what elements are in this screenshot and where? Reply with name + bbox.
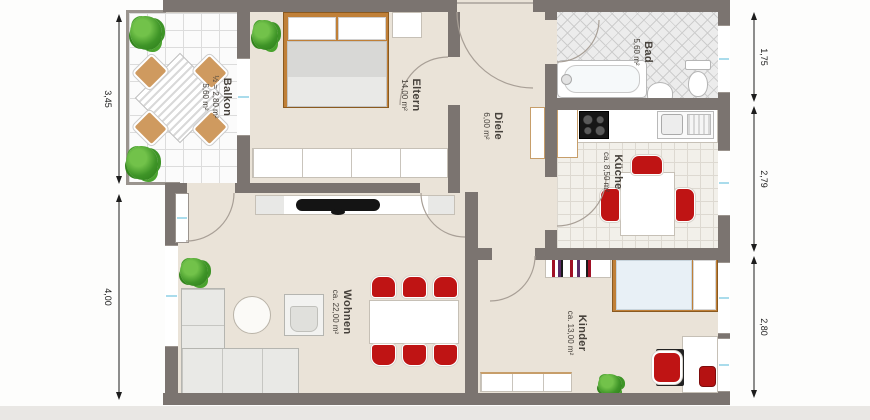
window-bad	[718, 25, 730, 93]
eltern-plant-icon	[252, 20, 278, 50]
room-name: Bad	[642, 41, 654, 63]
room-name: Diele	[492, 112, 504, 140]
room-area: ca. 13,00 m²	[566, 311, 575, 355]
kueche-door-opening	[545, 177, 557, 230]
room-area: ca. 22,00 m²	[331, 290, 340, 334]
window-kinder-2	[718, 338, 730, 392]
eltern-bed-pillow	[338, 17, 386, 40]
room-label-kueche: Küche ca. 8,50 m²	[602, 152, 624, 192]
room-area: 14,00 m²	[400, 79, 409, 111]
dim-right-1: 1,75	[759, 48, 769, 66]
wall	[448, 105, 460, 193]
balcony-plant-top-icon	[130, 16, 162, 50]
tv-stand-icon	[331, 209, 345, 215]
kinder-door-opening	[492, 248, 535, 260]
room-label-diele: Diele 6,00 m²	[482, 112, 504, 140]
room-name: Eltern	[410, 79, 422, 112]
kitchen-chair	[675, 188, 695, 222]
room-label-balkon: Balkon ½ = 2,80 m² 5,60 m²	[201, 76, 233, 119]
eltern-sideboard	[252, 148, 448, 178]
page-bottom-strip	[0, 406, 870, 420]
dining-chair	[433, 344, 458, 366]
kitchen-chair	[600, 188, 620, 222]
coffee-table	[233, 296, 271, 334]
room-area: 6,00 m²	[482, 112, 491, 139]
entrance-opening	[457, 0, 533, 12]
kinder-bookshelf	[545, 258, 611, 278]
dining-chair	[402, 344, 427, 366]
kinder-bed-pillow	[693, 260, 716, 310]
diele-cabinet	[530, 107, 545, 159]
window-kueche	[718, 150, 730, 216]
room-label-eltern: Eltern 14,00 m²	[400, 79, 422, 112]
eltern-bed-blanket	[287, 41, 387, 107]
dim-right-2: 2,79	[759, 170, 769, 188]
balcony-railing-top	[126, 10, 166, 13]
room-name: Balkon	[221, 78, 233, 116]
wall	[545, 110, 557, 177]
room-label-wohnen: Wohnen ca. 22,00 m²	[331, 290, 353, 335]
wall	[545, 230, 557, 260]
wall	[235, 183, 420, 193]
kitchen-sink-drainer	[687, 114, 711, 135]
dining-chair	[433, 276, 458, 298]
room-area: 5,60 m²	[632, 38, 641, 65]
dining-chair	[402, 276, 427, 298]
kitchen-cabinet	[557, 107, 578, 158]
kitchen-table	[620, 172, 675, 236]
wall	[163, 0, 457, 12]
room-label-kinder: Kinder ca. 13,00 m²	[566, 311, 588, 355]
balcony-door-opening	[187, 183, 235, 193]
eltern-nightstand	[392, 12, 422, 38]
wall	[533, 0, 730, 12]
window-eltern-balcony	[237, 58, 250, 136]
room-name: Küche	[612, 154, 624, 189]
wall	[165, 183, 187, 193]
room-name: Wohnen	[341, 290, 353, 335]
wall	[545, 98, 730, 110]
bathtub-faucet-icon	[561, 74, 572, 85]
wall	[478, 248, 492, 260]
balcony-plant-bottom-icon	[126, 146, 158, 180]
toilet-bowl	[688, 71, 708, 97]
room-area: ½ = 2,80 m²	[211, 76, 220, 119]
dim-left-1: 3,45	[103, 90, 113, 108]
window-wohnen	[165, 245, 178, 347]
room-area: ca. 8,50 m²	[602, 152, 611, 192]
floor-plan: Balkon ½ = 2,80 m² 5,60 m² Eltern 14,00 …	[0, 0, 870, 420]
wall	[545, 12, 557, 20]
bad-door-opening	[545, 20, 557, 64]
wohnen-plant-icon	[180, 258, 208, 286]
kinder-wardrobe	[480, 372, 572, 392]
kinder-desk-chair	[652, 351, 682, 384]
dining-chair	[371, 344, 396, 366]
room-area: 5,60 m²	[201, 83, 210, 110]
wall	[535, 248, 718, 260]
wall	[163, 393, 730, 405]
kitchen-chair	[631, 155, 663, 175]
bathtub-inner	[564, 65, 640, 93]
eltern-door-opening	[448, 57, 460, 105]
dining-table	[369, 300, 459, 344]
dim-right-3: 2,80	[759, 318, 769, 336]
balcony-door-leaf	[175, 193, 189, 243]
wall	[448, 12, 460, 57]
kitchen-sink-basin	[661, 114, 683, 135]
kitchen-cooktop	[579, 111, 609, 139]
kinder-desk-item	[699, 366, 716, 387]
toilet	[685, 60, 711, 70]
room-name: Kinder	[576, 315, 588, 352]
window-kinder	[718, 262, 730, 334]
armchair-seat	[290, 306, 318, 332]
wall	[465, 192, 478, 405]
eltern-bed-pillow	[288, 17, 336, 40]
room-label-bad: Bad 5,60 m²	[632, 38, 654, 65]
dining-chair	[371, 276, 396, 298]
sofa-section-horizontal	[181, 348, 299, 394]
kinder-bed-blanket	[616, 260, 692, 310]
dim-left-2: 4,00	[103, 288, 113, 306]
